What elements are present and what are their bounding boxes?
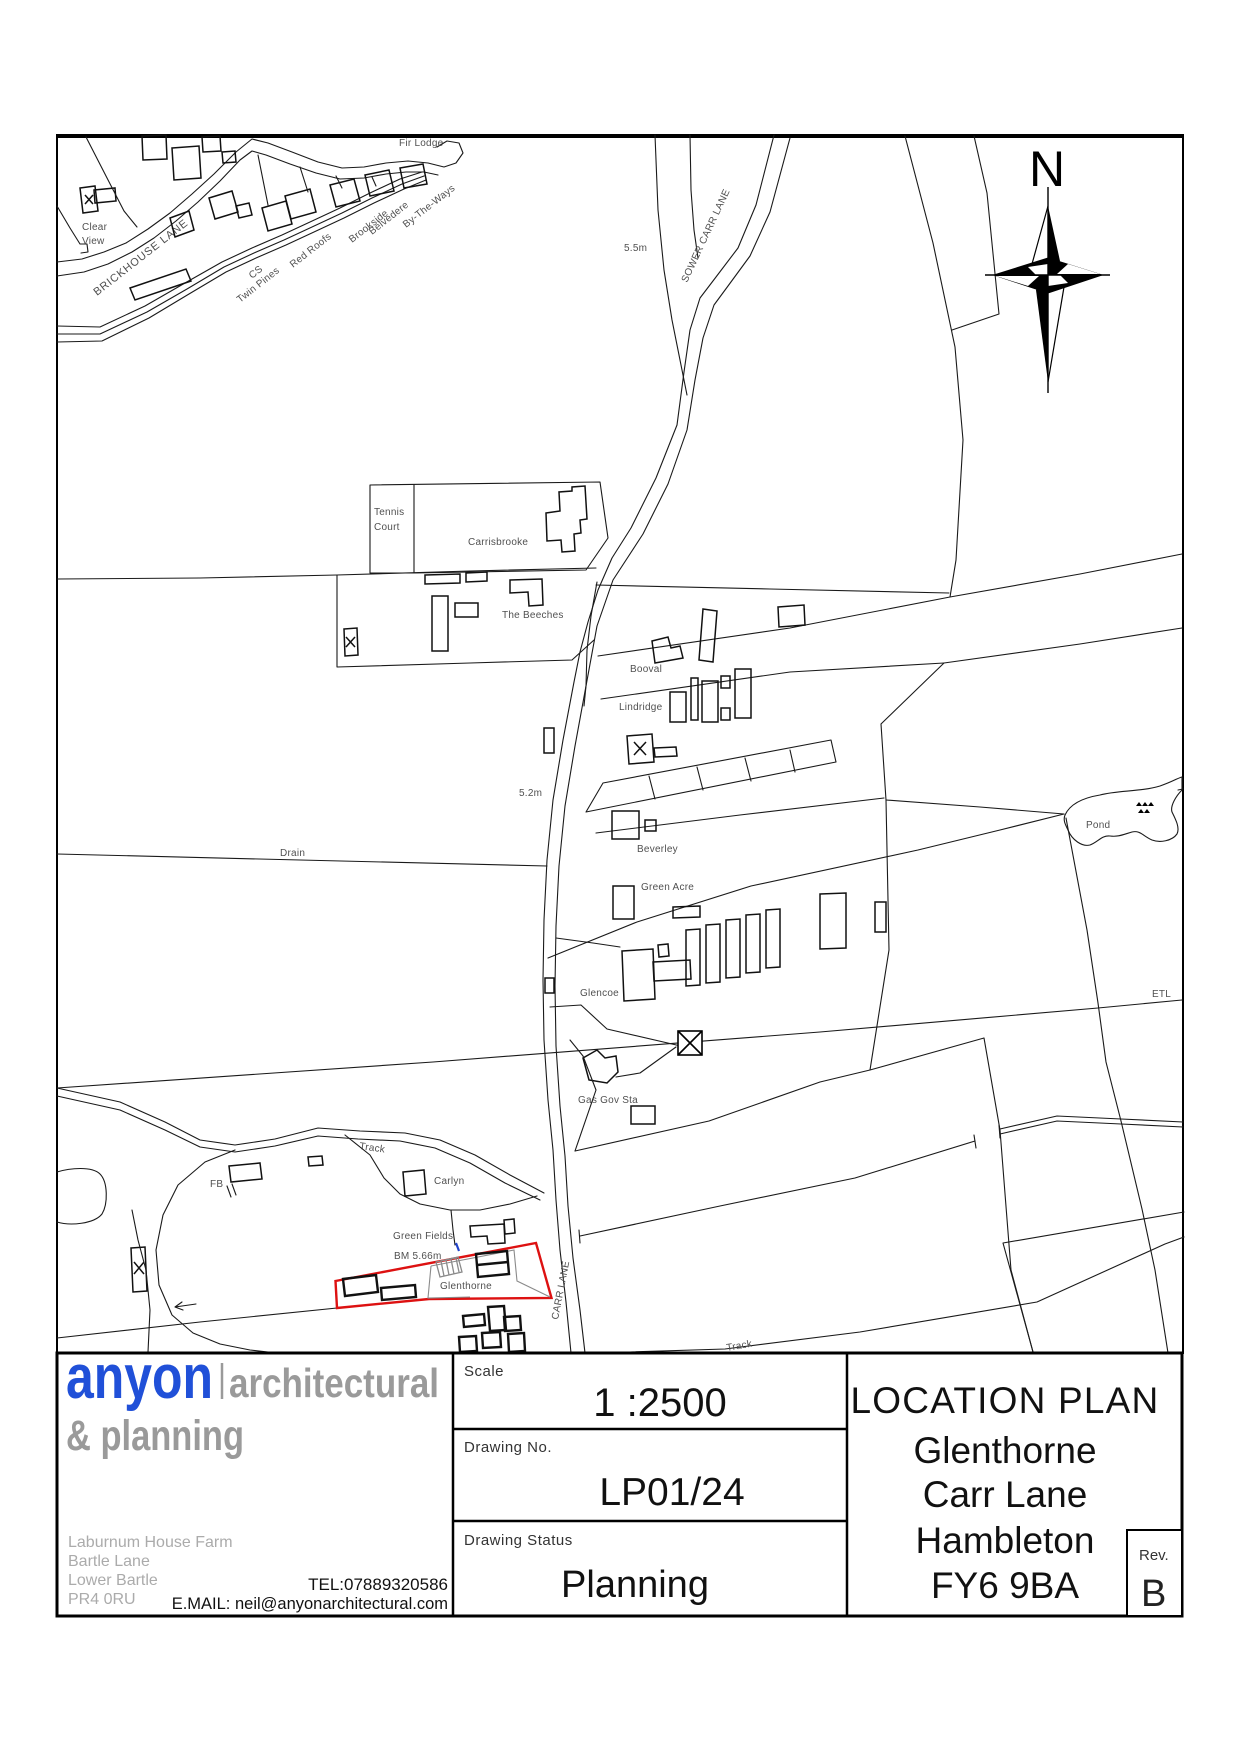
- svg-text:Drawing No.: Drawing No.: [464, 1439, 552, 1456]
- svg-text:FB: FB: [210, 1179, 223, 1190]
- svg-text:Green Acre: Green Acre: [641, 882, 694, 893]
- svg-text:Laburnum House Farm: Laburnum House Farm: [68, 1534, 233, 1551]
- svg-text:FY6 9BA: FY6 9BA: [931, 1565, 1079, 1606]
- svg-text:Gas Gov Sta: Gas Gov Sta: [578, 1095, 638, 1106]
- svg-text:Carlyn: Carlyn: [434, 1176, 464, 1187]
- svg-text:LP01/24: LP01/24: [599, 1471, 744, 1514]
- svg-text:Glenthorne: Glenthorne: [913, 1430, 1096, 1471]
- svg-text:Clear: Clear: [82, 222, 108, 233]
- svg-text:& planning: & planning: [66, 1412, 244, 1460]
- svg-text:LOCATION PLAN: LOCATION PLAN: [851, 1380, 1160, 1421]
- svg-text:Beverley: Beverley: [637, 844, 678, 855]
- svg-text:Planning: Planning: [561, 1564, 709, 1606]
- svg-text:Green Fields: Green Fields: [393, 1231, 453, 1242]
- svg-text:architectural: architectural: [229, 1360, 439, 1406]
- svg-text:anyon: anyon: [66, 1343, 213, 1412]
- svg-text:Scale: Scale: [464, 1363, 504, 1380]
- svg-text:Drawing Status: Drawing Status: [464, 1532, 573, 1549]
- svg-text:Tennis: Tennis: [374, 507, 404, 518]
- svg-text:5.5m: 5.5m: [624, 243, 647, 254]
- svg-text:Drain: Drain: [280, 848, 305, 859]
- svg-text:PR4 0RU: PR4 0RU: [68, 1591, 136, 1608]
- svg-text:Court: Court: [374, 522, 400, 533]
- svg-text:Hambleton: Hambleton: [916, 1520, 1095, 1561]
- svg-text:B: B: [1141, 1573, 1166, 1615]
- svg-text:Glenthorne: Glenthorne: [440, 1281, 492, 1292]
- svg-text:Lower Bartle: Lower Bartle: [68, 1572, 158, 1589]
- svg-text:Booval: Booval: [630, 664, 662, 675]
- svg-text:E.MAIL: neil@anyonarchitectura: E.MAIL: neil@anyonarchitectural.com: [172, 1595, 448, 1613]
- svg-text:N: N: [1029, 141, 1065, 197]
- svg-text:Carr Lane: Carr Lane: [923, 1474, 1088, 1515]
- svg-text:Bartle Lane: Bartle Lane: [68, 1553, 150, 1570]
- svg-text:Lindridge: Lindridge: [619, 702, 663, 713]
- svg-text:1 :2500: 1 :2500: [593, 1381, 726, 1425]
- svg-text:Glencoe: Glencoe: [580, 988, 619, 999]
- svg-text:Rev.: Rev.: [1139, 1547, 1169, 1564]
- svg-text:ETL: ETL: [1152, 989, 1171, 1000]
- svg-text:Fir Lodge: Fir Lodge: [399, 138, 444, 149]
- svg-text:Carrisbrooke: Carrisbrooke: [468, 537, 528, 548]
- svg-text:BM 5.66m: BM 5.66m: [394, 1251, 442, 1262]
- svg-text:View: View: [82, 236, 105, 247]
- svg-text:5.2m: 5.2m: [519, 788, 542, 799]
- svg-text:The Beeches: The Beeches: [502, 610, 564, 621]
- svg-text:TEL:07889320586: TEL:07889320586: [308, 1575, 448, 1594]
- svg-text:Pond: Pond: [1086, 820, 1110, 831]
